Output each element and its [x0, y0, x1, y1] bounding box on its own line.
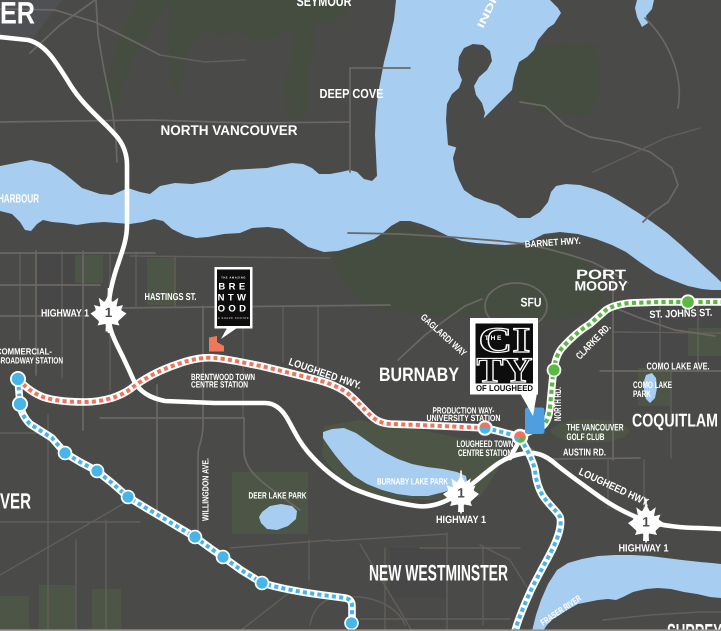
- svg-text:CENTRE STATION: CENTRE STATION: [191, 380, 248, 390]
- svg-text:BRE: BRE: [218, 282, 248, 293]
- svg-text:A SHAPE CENTRE: A SHAPE CENTRE: [218, 316, 250, 320]
- svg-text:HIGHWAY 1: HIGHWAY 1: [41, 308, 89, 320]
- svg-text:BURNABY LAKE PARK: BURNABY LAKE PARK: [377, 477, 448, 487]
- svg-text:BROADWAY STATION: BROADWAY STATION: [0, 356, 63, 366]
- svg-text:DEER LAKE PARK: DEER LAKE PARK: [249, 491, 307, 501]
- svg-text:NORTH VANCOUVER: NORTH VANCOUVER: [161, 122, 298, 138]
- svg-text:SFU: SFU: [521, 296, 542, 310]
- svg-text:COMO LAKE AVE.: COMO LAKE AVE.: [647, 362, 710, 373]
- svg-text:HASTINGS ST.: HASTINGS ST.: [145, 292, 197, 303]
- svg-text:CENTRE STATION: CENTRE STATION: [458, 448, 512, 459]
- svg-text:SURREY: SURREY: [667, 620, 721, 631]
- svg-text:DEEP COVE: DEEP COVE: [320, 86, 384, 101]
- svg-text:NEW WESTMINSTER: NEW WESTMINSTER: [369, 561, 508, 586]
- svg-text:PARK: PARK: [633, 389, 651, 400]
- svg-text:THE: THE: [485, 335, 503, 342]
- svg-text:HARBOUR: HARBOUR: [0, 192, 39, 206]
- svg-text:COQUITLAM: COQUITLAM: [632, 410, 718, 431]
- svg-text:HIGHWAY 1: HIGHWAY 1: [619, 543, 669, 555]
- svg-text:UNIVERSITY STATION: UNIVERSITY STATION: [427, 413, 501, 423]
- svg-text:VER: VER: [0, 489, 31, 514]
- svg-text:ER: ER: [0, 0, 35, 31]
- svg-text:NORTH RD.: NORTH RD.: [553, 387, 564, 421]
- svg-text:MOODY: MOODY: [575, 279, 628, 294]
- svg-text:1: 1: [642, 515, 650, 530]
- svg-text:1: 1: [105, 305, 113, 320]
- svg-text:SEYMOUR: SEYMOUR: [297, 0, 352, 9]
- svg-text:OF LOUGHEED: OF LOUGHEED: [476, 383, 533, 393]
- svg-text:ST. JOHNS ST.: ST. JOHNS ST.: [649, 307, 712, 321]
- svg-text:OOD: OOD: [218, 304, 250, 315]
- svg-text:WILLINGDON AVE.: WILLINGDON AVE.: [201, 458, 211, 521]
- svg-text:BURNABY: BURNABY: [379, 364, 459, 386]
- svg-text:1: 1: [457, 486, 465, 501]
- svg-text:AUSTIN RD.: AUSTIN RD.: [563, 448, 606, 459]
- svg-text:GOLF CLUB: GOLF CLUB: [567, 432, 605, 443]
- svg-text:HIGHWAY 1: HIGHWAY 1: [436, 514, 486, 526]
- svg-text:NTW: NTW: [218, 293, 250, 304]
- svg-text:THE AMAZING: THE AMAZING: [221, 275, 246, 279]
